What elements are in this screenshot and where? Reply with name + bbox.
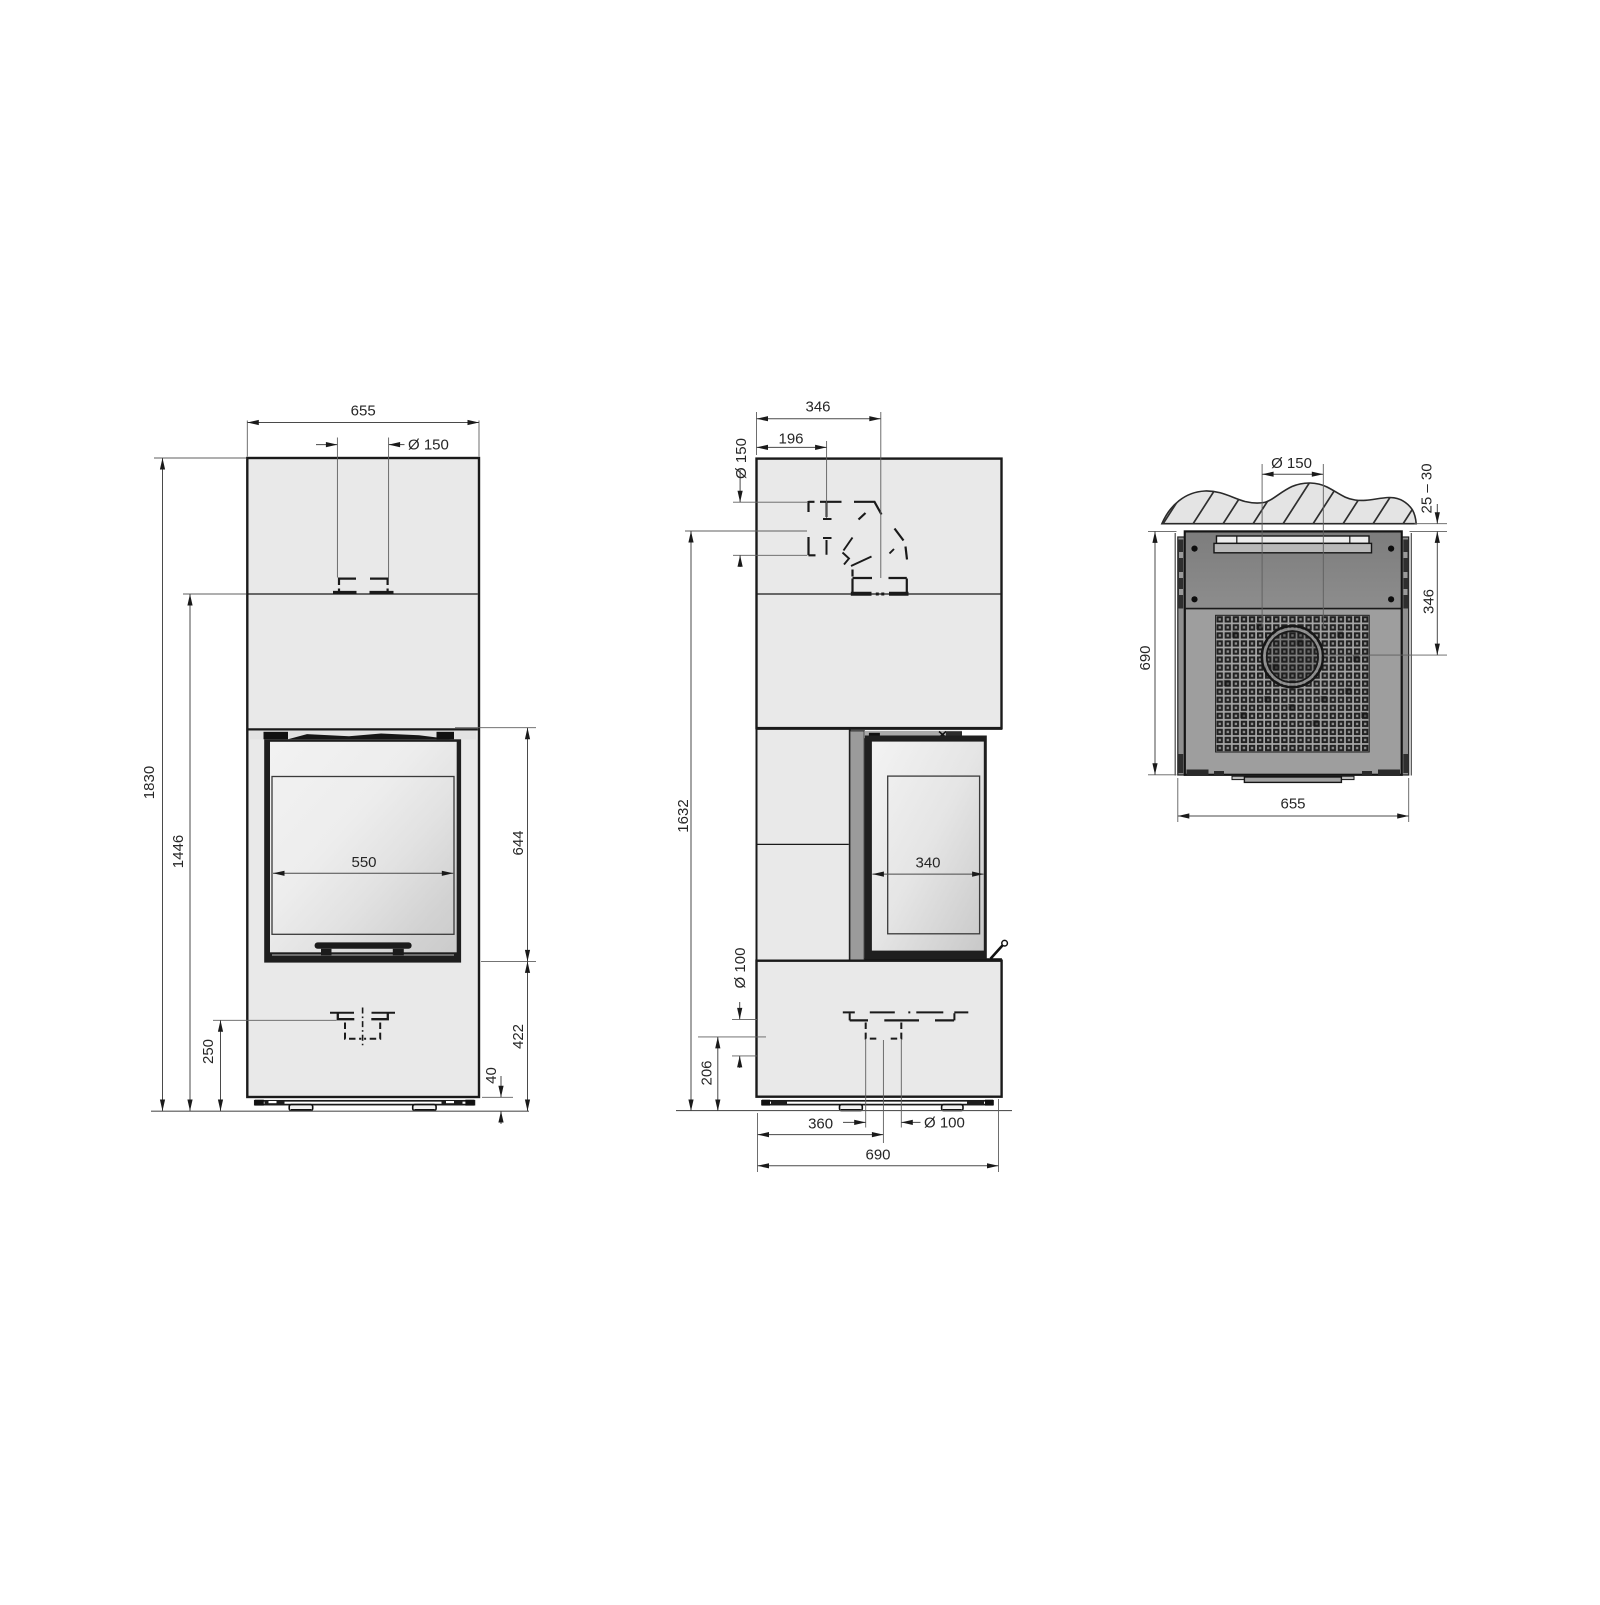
svg-text:550: 550 xyxy=(351,854,376,871)
svg-text:Ø 100: Ø 100 xyxy=(732,948,749,989)
svg-text:250: 250 xyxy=(200,1039,217,1064)
svg-text:346: 346 xyxy=(805,399,830,416)
svg-text:25 – 30: 25 – 30 xyxy=(1419,463,1436,513)
svg-text:340: 340 xyxy=(915,855,940,872)
svg-text:40: 40 xyxy=(483,1067,500,1084)
svg-text:Ø 150: Ø 150 xyxy=(733,438,750,479)
svg-text:Ø 100: Ø 100 xyxy=(924,1115,965,1132)
svg-text:655: 655 xyxy=(1280,796,1305,813)
svg-text:Ø 150: Ø 150 xyxy=(408,437,449,454)
svg-text:196: 196 xyxy=(778,431,803,448)
svg-text:346: 346 xyxy=(1421,589,1438,614)
svg-text:655: 655 xyxy=(351,403,376,420)
svg-text:Ø 150: Ø 150 xyxy=(1271,455,1312,472)
svg-text:1446: 1446 xyxy=(170,835,187,868)
svg-text:690: 690 xyxy=(1137,645,1154,670)
svg-text:690: 690 xyxy=(865,1147,890,1164)
svg-text:644: 644 xyxy=(510,830,527,855)
svg-text:422: 422 xyxy=(510,1024,527,1049)
svg-text:1632: 1632 xyxy=(675,799,692,832)
svg-text:206: 206 xyxy=(699,1060,716,1085)
svg-text:1830: 1830 xyxy=(141,766,158,799)
svg-text:360: 360 xyxy=(808,1116,833,1133)
